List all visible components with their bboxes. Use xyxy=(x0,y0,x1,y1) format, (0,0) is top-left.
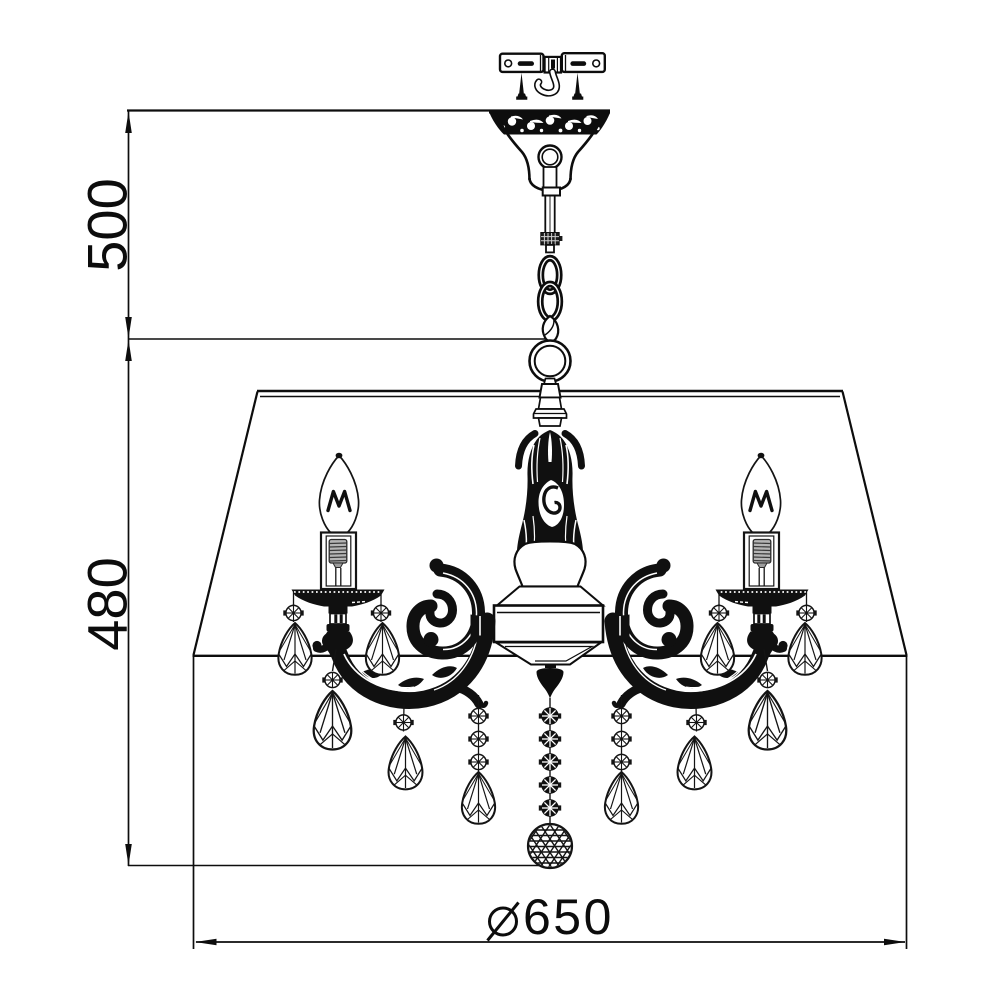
svg-text:480: 480 xyxy=(76,557,139,650)
svg-text:650: 650 xyxy=(523,889,614,945)
svg-text:500: 500 xyxy=(76,178,139,271)
